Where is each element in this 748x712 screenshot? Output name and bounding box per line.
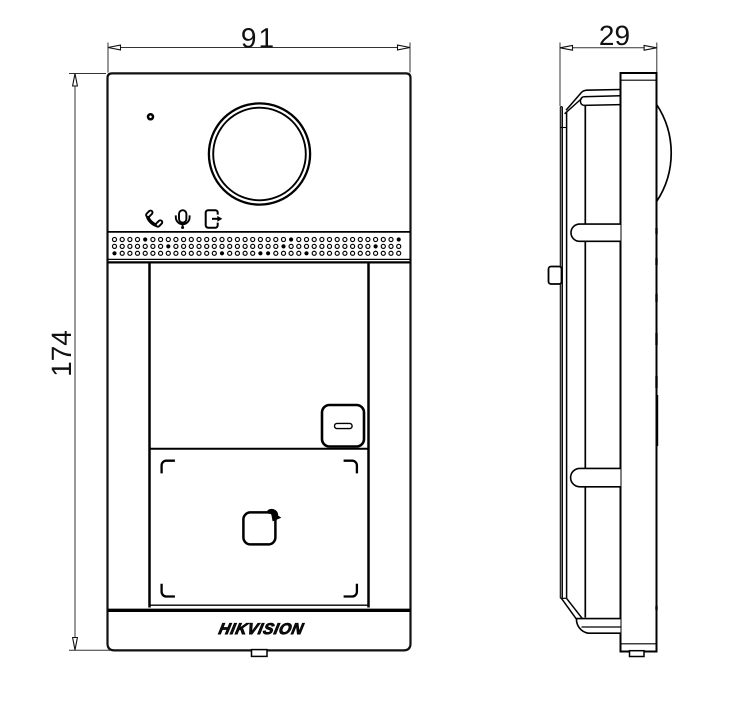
svg-text:91: 91	[241, 23, 276, 54]
svg-text:29: 29	[599, 20, 630, 51]
svg-text:174: 174	[46, 330, 77, 377]
svg-text:HIKVISION: HIKVISION	[217, 621, 305, 638]
